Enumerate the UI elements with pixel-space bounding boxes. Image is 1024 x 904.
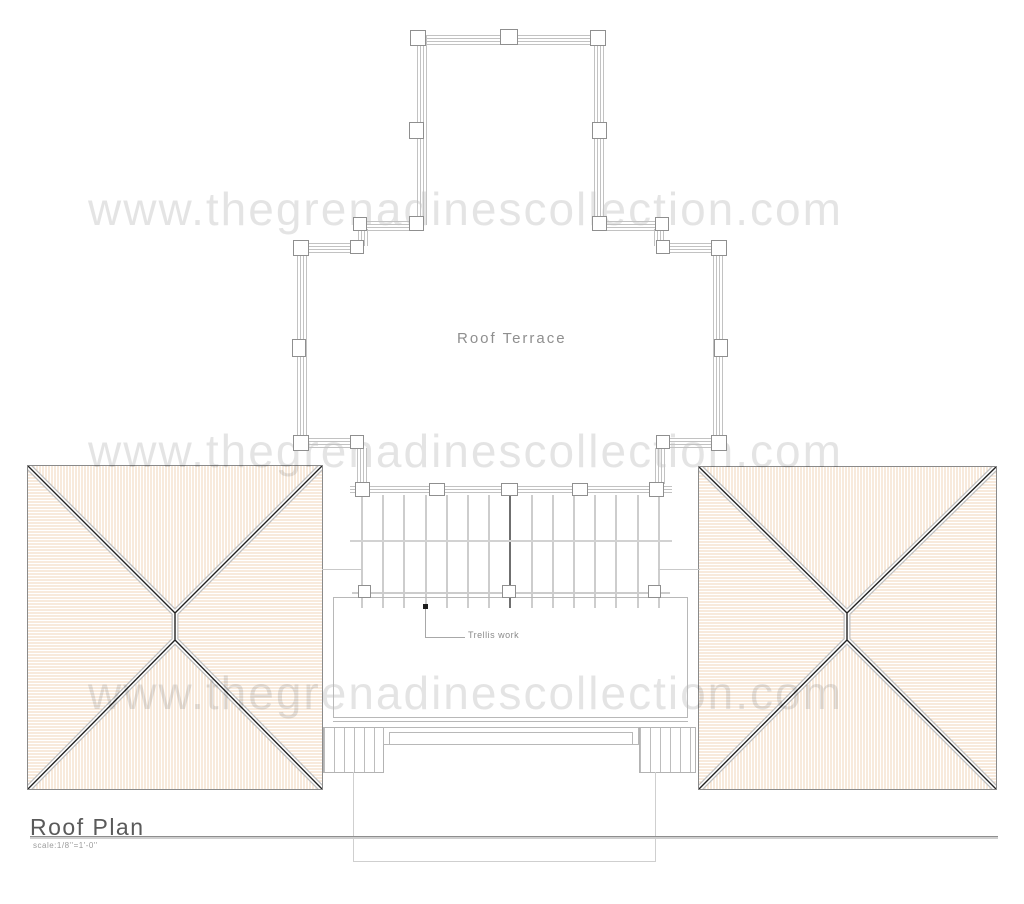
terrace-post-top-right xyxy=(711,240,727,256)
trellis-beam-post-right xyxy=(648,585,661,598)
terrace-post-step-bottom-left xyxy=(350,435,364,449)
terrace-post-step-top-left xyxy=(350,240,364,254)
lower-patio-outline xyxy=(353,772,656,862)
tower-post-mid-left xyxy=(409,122,424,139)
trellis-leader-vline xyxy=(425,609,426,638)
roof-plan-sheet: www.thegrenadinescollection.com www.theg… xyxy=(0,0,1024,904)
terrace-drop-rail-left xyxy=(357,448,367,484)
tower-post-mid-right xyxy=(592,122,607,139)
terrace-post-mid-right xyxy=(714,339,728,357)
tower-post-bottom-right xyxy=(592,216,607,231)
watermark-row-2: www.thegrenadinescollection.com xyxy=(88,428,843,474)
landing-inner xyxy=(389,732,633,745)
title-underline xyxy=(30,836,998,839)
trellis-label: Trellis work xyxy=(468,630,519,640)
trellis-crossbeam xyxy=(350,540,672,542)
scale-note: scale:1/8''=1'-0'' xyxy=(33,841,98,850)
trellis-beam-post-left xyxy=(358,585,371,598)
roof-connector-left xyxy=(322,569,362,570)
terrace-post-bottom-right xyxy=(711,435,727,451)
trellis-beam-post-center xyxy=(502,585,516,598)
trellis-leader-hline xyxy=(425,637,465,638)
left-roof-plan xyxy=(27,465,323,790)
terrace-post-mid-left xyxy=(292,339,306,357)
trellis-rail-post-center xyxy=(501,483,518,496)
tower-post-top-left xyxy=(410,30,426,46)
left-steps xyxy=(323,727,384,773)
lower-building-bottom-line xyxy=(333,721,688,722)
lower-building-outline xyxy=(333,597,688,718)
right-steps xyxy=(639,727,696,773)
trellis-rail-post-1 xyxy=(429,483,445,496)
tower-post-top-right xyxy=(590,30,606,46)
terrace-post-top-left xyxy=(293,240,309,256)
step-rail-right xyxy=(604,221,659,231)
right-roof-plan xyxy=(698,466,997,790)
step-post-left-upper xyxy=(353,217,367,231)
trellis-rail-post-left xyxy=(355,482,370,497)
step-post-right-upper xyxy=(655,217,669,231)
terrace-post-bottom-left xyxy=(293,435,309,451)
trellis-rail-post-right xyxy=(649,482,664,497)
trellis-rail-post-2 xyxy=(572,483,588,496)
roof-connector-right xyxy=(658,569,700,570)
roof-terrace-label: Roof Terrace xyxy=(457,330,567,347)
watermark-row-1: www.thegrenadinescollection.com xyxy=(88,186,843,232)
tower-post-bottom-left xyxy=(409,216,424,231)
tower-post-top-center xyxy=(500,29,518,45)
trellis-leader-dot xyxy=(423,604,428,609)
terrace-drop-rail-right xyxy=(655,448,665,484)
terrace-post-step-top-right xyxy=(656,240,670,254)
terrace-post-step-bottom-right xyxy=(656,435,670,449)
